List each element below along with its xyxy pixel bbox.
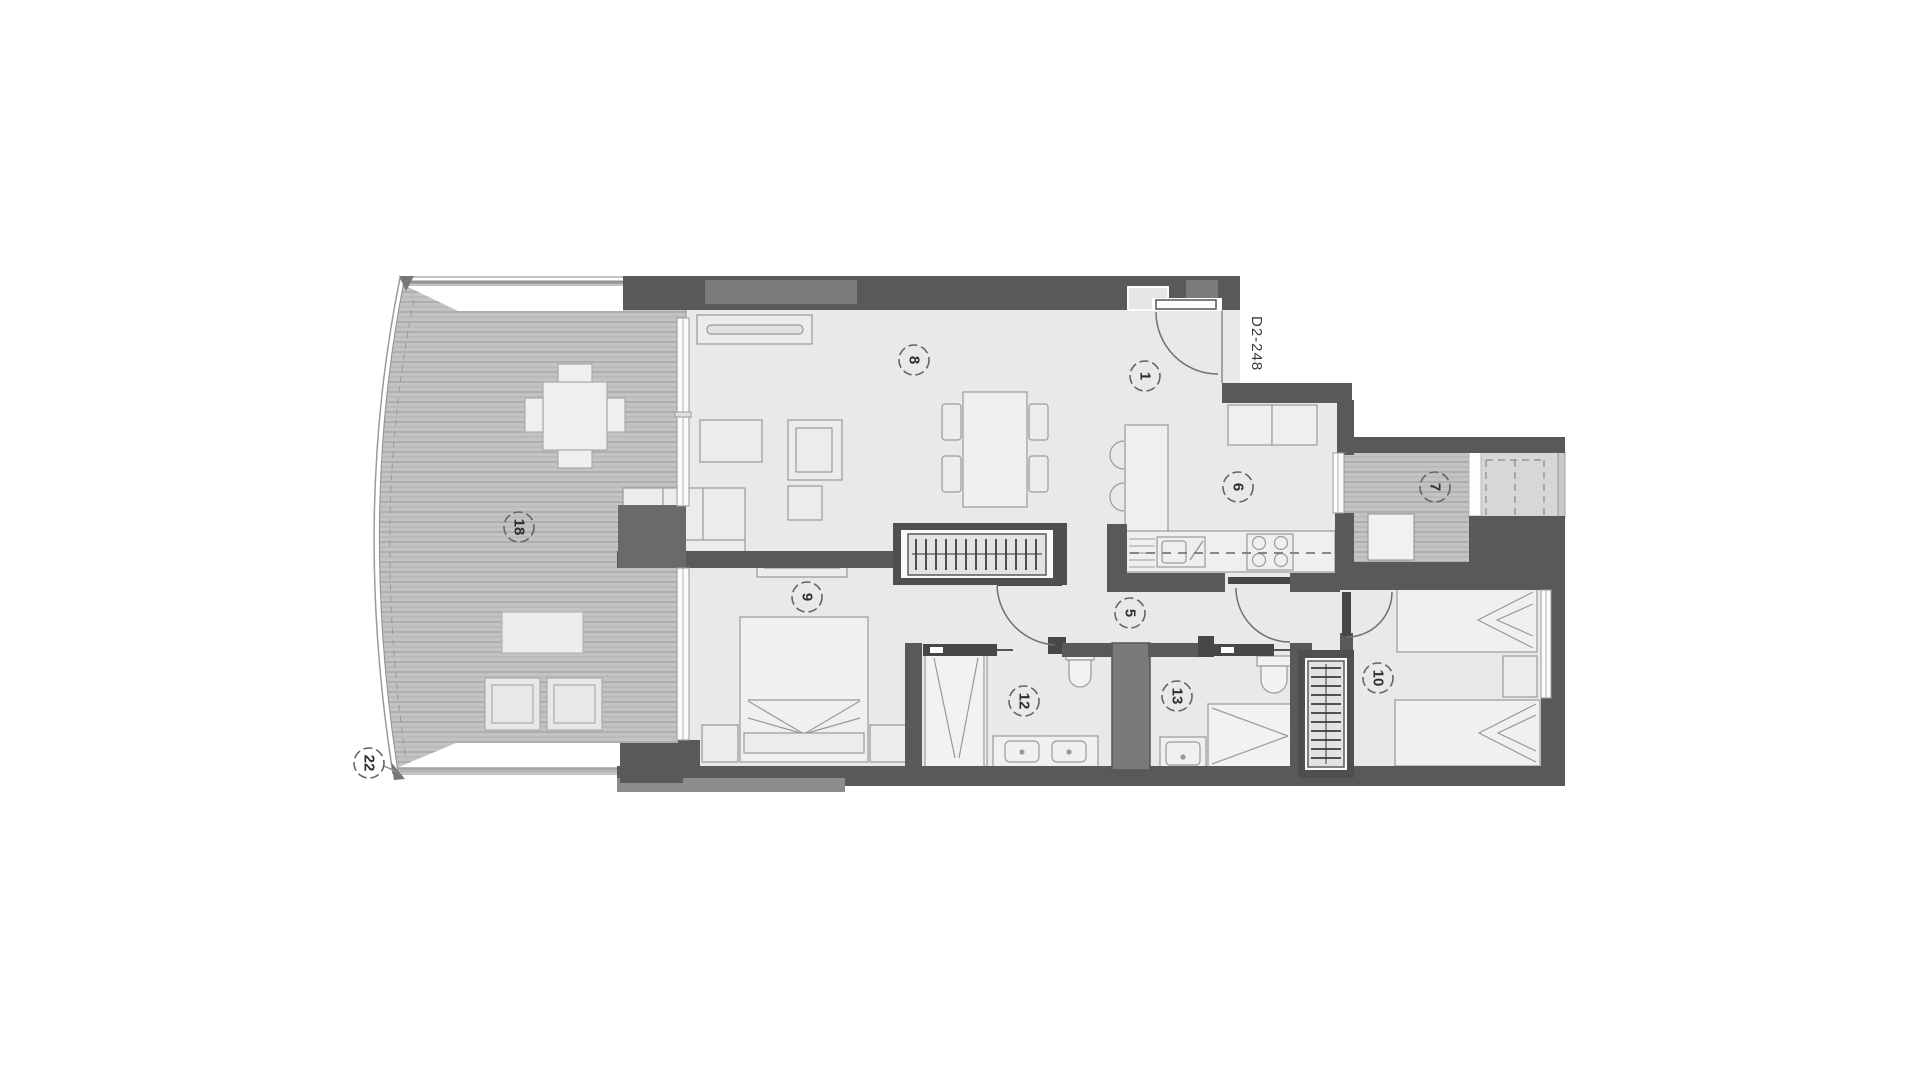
nightstand xyxy=(1503,656,1537,697)
bed-single-bottom xyxy=(1395,700,1540,766)
adjacent-room xyxy=(1469,452,1565,518)
room-label-22: 22 xyxy=(354,748,384,778)
wardrobe-bed10 xyxy=(1298,650,1354,778)
floor-plan: D2-248 1822891561213710 xyxy=(0,0,1920,1080)
kitchen-cabinet-1 xyxy=(1228,405,1272,445)
bed-headboard xyxy=(744,733,864,753)
bed-single-top xyxy=(1397,588,1537,652)
svg-text:22: 22 xyxy=(361,755,378,772)
wardrobe-bed9 xyxy=(893,523,1067,585)
wall-kitchen-left xyxy=(1107,524,1127,592)
tv-console xyxy=(697,315,812,344)
wall-right xyxy=(1551,586,1565,786)
terrace-coffee-table xyxy=(502,612,583,653)
ac-unit-pad xyxy=(1368,514,1414,560)
nightstand-left xyxy=(702,725,738,762)
svg-text:18: 18 xyxy=(511,519,528,536)
unit-tag: D2-248 xyxy=(1248,316,1265,371)
wall-entry-side xyxy=(1222,383,1352,403)
armchair xyxy=(788,420,842,480)
kitchen-cabinet-2 xyxy=(1272,405,1317,445)
sink-13 xyxy=(1160,737,1206,770)
structural-column xyxy=(618,505,686,568)
duct-shaft xyxy=(1112,643,1150,770)
wall-bath13-jamb xyxy=(1198,636,1214,657)
wall-terrace7-top xyxy=(1337,437,1565,453)
terrace-7 xyxy=(1344,452,1470,564)
svg-text:10: 10 xyxy=(1370,670,1387,687)
kitchen-island xyxy=(1125,425,1168,533)
vanity-double-sink xyxy=(993,736,1098,767)
floorplan-page: D2-248 1822891561213710 xyxy=(0,0,1920,1080)
window-kitchen-terrace7 xyxy=(1333,453,1344,513)
wall-bath12-left xyxy=(905,643,922,770)
wall-terrace7-bottom xyxy=(1337,562,1565,590)
window-bed9-terrace xyxy=(677,568,689,740)
svg-text:5: 5 xyxy=(1122,609,1139,617)
adjacent-room-right-edge xyxy=(1558,452,1565,518)
svg-text:8: 8 xyxy=(906,356,923,364)
svg-text:12: 12 xyxy=(1016,693,1033,710)
wall-kitchen-bottom-left xyxy=(1125,573,1225,592)
side-table xyxy=(788,486,822,520)
svg-text:1: 1 xyxy=(1137,372,1154,380)
shower-12 xyxy=(925,652,987,768)
wall-kitchen-bottom-right xyxy=(1290,573,1340,592)
svg-text:9: 9 xyxy=(799,593,816,601)
svg-text:7: 7 xyxy=(1427,483,1444,491)
coffee-table xyxy=(700,420,762,462)
svg-text:6: 6 xyxy=(1230,483,1247,491)
window-bed10 xyxy=(1541,590,1551,698)
shower-13 xyxy=(1208,704,1296,768)
terrace7-door-gap xyxy=(1469,452,1481,516)
nightstand-right xyxy=(870,725,906,762)
svg-text:13: 13 xyxy=(1169,688,1186,705)
window-living-terrace xyxy=(675,318,691,506)
